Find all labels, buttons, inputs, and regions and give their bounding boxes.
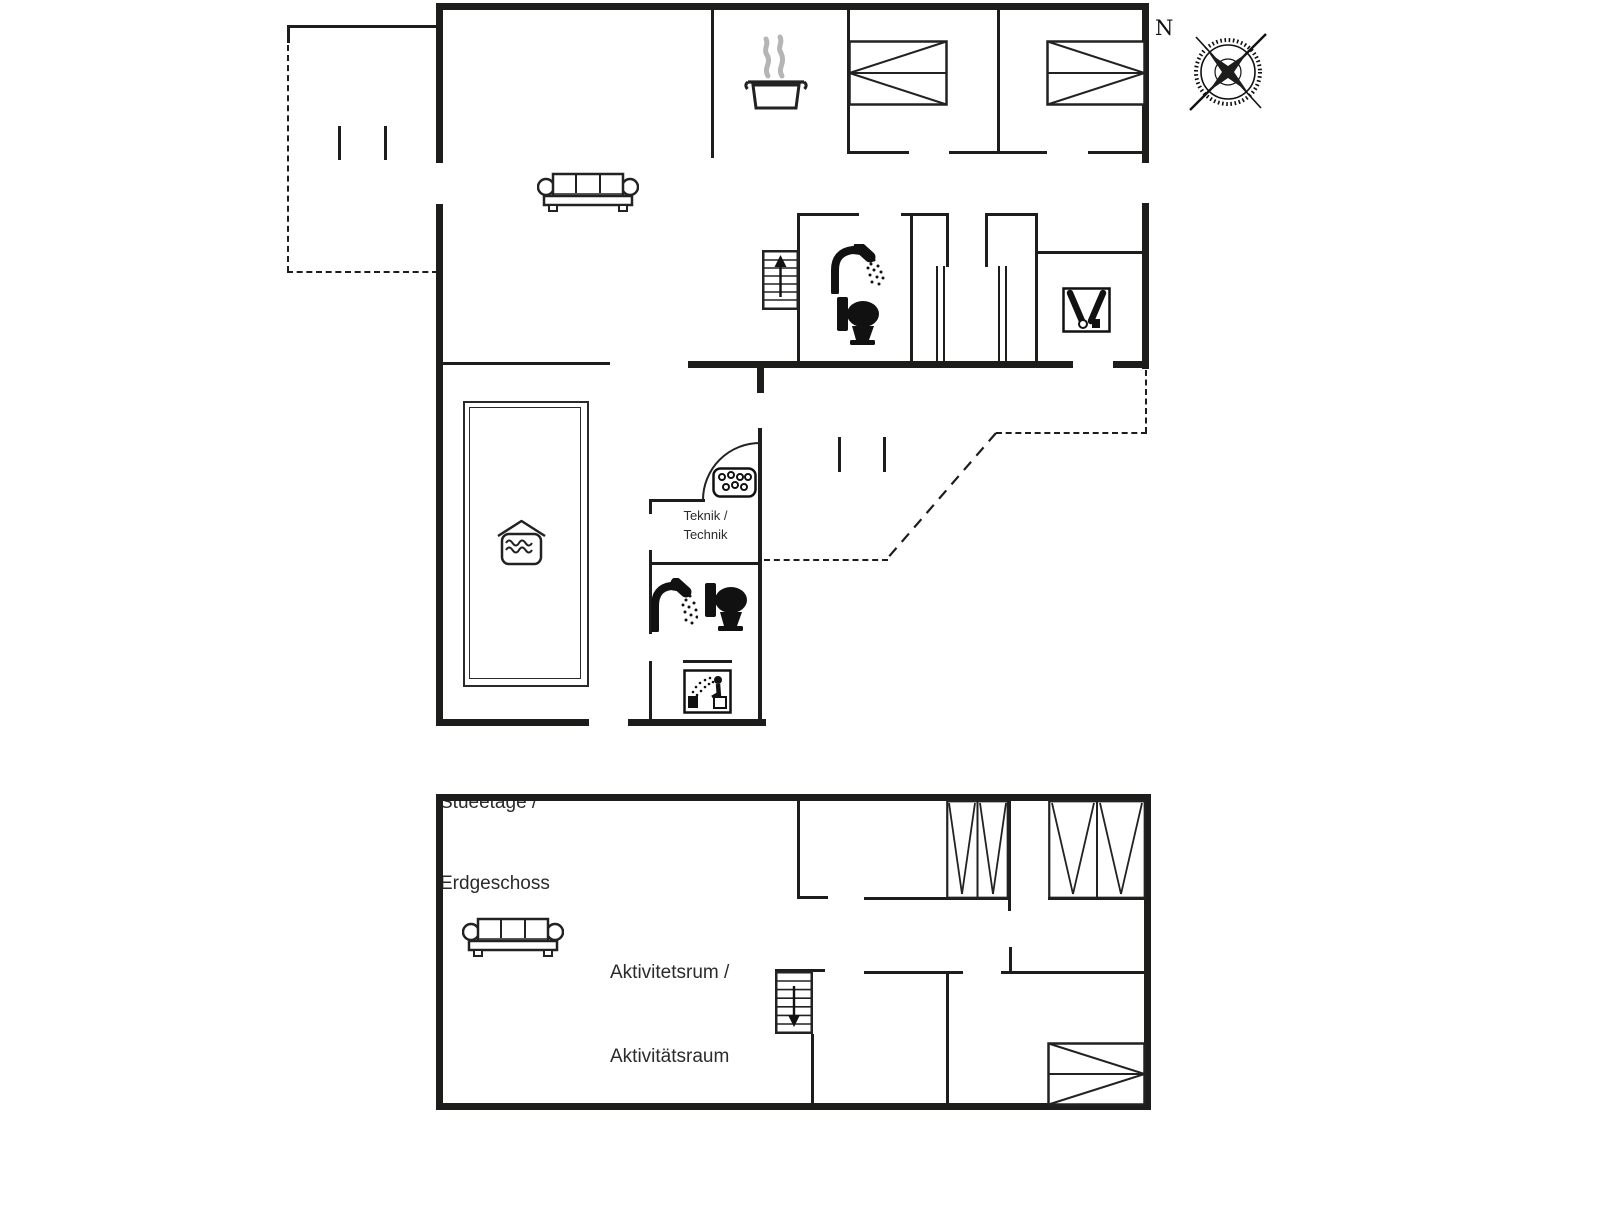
toilet-icon bbox=[836, 297, 880, 347]
wardrobe-icon bbox=[1048, 800, 1146, 899]
dashed-outline bbox=[880, 428, 1002, 564]
dashed-outline bbox=[1145, 370, 1147, 433]
stairs-up-icon bbox=[762, 250, 799, 310]
compass-north-label: N bbox=[1155, 16, 1173, 40]
double-bed-icon bbox=[848, 40, 948, 106]
terrace-edge bbox=[287, 25, 290, 43]
shower-icon bbox=[830, 244, 886, 294]
window-tick-icon bbox=[838, 437, 841, 472]
wall-segment bbox=[649, 661, 652, 721]
sofa-icon bbox=[462, 917, 564, 959]
wall-segment bbox=[436, 794, 1151, 801]
window-tick-icon bbox=[338, 126, 341, 160]
wall-segment bbox=[649, 499, 705, 502]
wall-segment bbox=[1035, 251, 1147, 254]
stairs-down-icon bbox=[775, 971, 813, 1034]
wall-segment bbox=[986, 213, 1037, 216]
wall-segment bbox=[1001, 971, 1147, 974]
wall-segment bbox=[946, 213, 949, 267]
wall-segment bbox=[436, 794, 443, 1110]
wall-segment bbox=[1035, 213, 1038, 363]
room-label-activity: Aktivitetsrum / Aktivitätsraum bbox=[610, 903, 729, 1127]
floor-label-upper: 1. sal / Obergeschoss bbox=[440, 1143, 563, 1205]
floor-plan-canvas: Teknik / Technik Stueetage / Erdgesch bbox=[0, 0, 1606, 1205]
wall-segment bbox=[1088, 151, 1146, 154]
toilet-icon bbox=[703, 583, 749, 633]
wall-segment bbox=[649, 562, 762, 565]
sofa-icon bbox=[537, 172, 639, 214]
wall-segment bbox=[1142, 203, 1149, 369]
wall-segment bbox=[436, 3, 1149, 10]
wall-segment bbox=[436, 719, 589, 726]
wall-segment bbox=[997, 5, 1000, 153]
sliding-door bbox=[998, 266, 1000, 361]
wall-segment bbox=[946, 971, 949, 1110]
wall-segment bbox=[1113, 361, 1149, 368]
wall-segment bbox=[949, 151, 1047, 154]
floor-label-upper-line1: 1. sal / bbox=[440, 1201, 563, 1205]
floor-label-ground-line2: Erdgeschoss bbox=[440, 870, 550, 897]
dashed-outline bbox=[287, 271, 438, 273]
sliding-door bbox=[936, 266, 938, 361]
sauna-icon bbox=[683, 669, 732, 714]
wall-segment bbox=[711, 5, 714, 158]
dashed-outline bbox=[764, 559, 888, 561]
wall-segment bbox=[811, 1034, 814, 1110]
whirlpool-icon bbox=[712, 467, 757, 498]
dashed-outline bbox=[287, 45, 289, 272]
shower-icon bbox=[650, 578, 698, 632]
pool-icon bbox=[494, 516, 549, 568]
wall-segment bbox=[436, 1103, 1151, 1110]
room-label-teknik: Teknik / Technik bbox=[649, 506, 762, 544]
wall-segment bbox=[688, 361, 1073, 368]
compass-rose-icon bbox=[1186, 30, 1270, 114]
wall-segment bbox=[683, 660, 732, 663]
single-bed-icon bbox=[1047, 1042, 1146, 1106]
wall-segment bbox=[436, 362, 610, 365]
room-label-teknik-line1: Teknik / bbox=[649, 506, 762, 525]
terrace-edge bbox=[287, 25, 438, 28]
window-tick-icon bbox=[384, 126, 387, 160]
wall-segment bbox=[847, 151, 909, 154]
washbasin-icon bbox=[1062, 287, 1111, 333]
sliding-door bbox=[1005, 266, 1007, 361]
sliding-door bbox=[943, 266, 945, 361]
room-label-activity-line2: Aktivitätsraum bbox=[610, 1043, 729, 1071]
wall-segment bbox=[910, 213, 913, 363]
wall-segment bbox=[757, 361, 764, 393]
wall-segment bbox=[1009, 947, 1012, 973]
cooking-pot-icon bbox=[744, 34, 808, 112]
window-tick-icon bbox=[883, 437, 886, 472]
wardrobe-icon bbox=[946, 800, 1009, 899]
double-bed-icon bbox=[1046, 40, 1146, 106]
dashed-outline bbox=[996, 432, 1147, 434]
wall-segment bbox=[797, 896, 828, 899]
room-label-teknik-line2: Technik bbox=[649, 525, 762, 544]
wall-segment bbox=[797, 213, 859, 216]
wall-segment bbox=[436, 204, 443, 726]
wall-segment bbox=[797, 801, 800, 898]
room-label-activity-line1: Aktivitetsrum / bbox=[610, 959, 729, 987]
wall-segment bbox=[901, 213, 949, 216]
wall-segment bbox=[985, 213, 988, 267]
